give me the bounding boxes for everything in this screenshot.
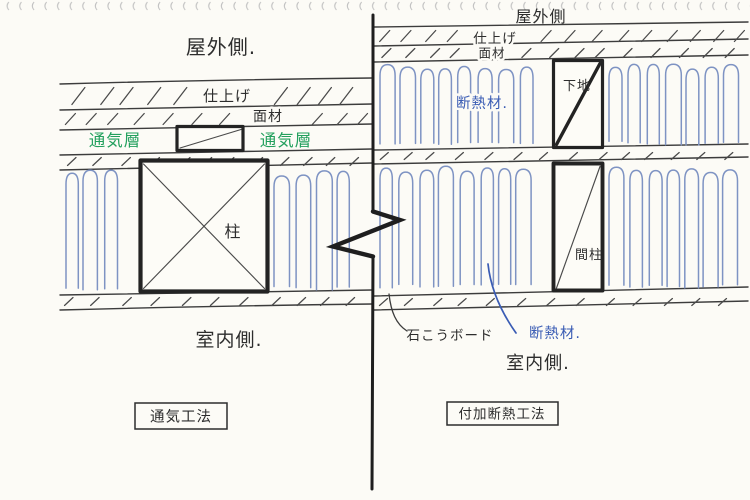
right-indoor-label: 室内側.	[506, 353, 570, 374]
right-stud-box	[554, 164, 603, 291]
paper-background	[0, 0, 750, 500]
right-insulation-label-upper: 断熱材.	[456, 95, 508, 112]
right-outdoor-label: 屋外側	[515, 7, 566, 26]
left-finish-label: 仕上げ	[203, 87, 251, 105]
left-furring-strip	[177, 127, 243, 151]
left-pillar-label: 柱	[224, 222, 241, 241]
right-insulation-label-lower: 断熱材.	[529, 325, 581, 342]
left-sheathing-label: 面材	[253, 109, 283, 125]
notebook-perforation-edge	[0, 0, 750, 12]
left-method-title: 通気工法	[150, 409, 212, 426]
right-base-label: 下地	[563, 79, 591, 94]
notebook-page: 屋外側. 仕上げ 面材 通気層 通気層 柱 室内側. 通気工法 屋外側 仕上げ …	[0, 0, 750, 500]
right-base-box	[554, 61, 603, 148]
right-sheathing-label: 面材	[478, 46, 505, 61]
left-vent-layer-label-right: 通気層	[260, 131, 313, 150]
right-stud-label: 間柱	[575, 248, 603, 263]
left-outdoor-label: 屋外側.	[186, 35, 256, 59]
left-vent-layer-label-left: 通気層	[89, 131, 142, 150]
left-pillar-box	[141, 161, 268, 292]
right-method-title: 付加断熱工法	[459, 407, 546, 423]
left-indoor-label: 室内側.	[195, 329, 262, 351]
right-gypsum-board-label: 石こうボード	[407, 328, 494, 344]
wall-construction-sketch: 屋外側. 仕上げ 面材 通気層 通気層 柱 室内側. 通気工法 屋外側 仕上げ …	[0, 0, 750, 500]
